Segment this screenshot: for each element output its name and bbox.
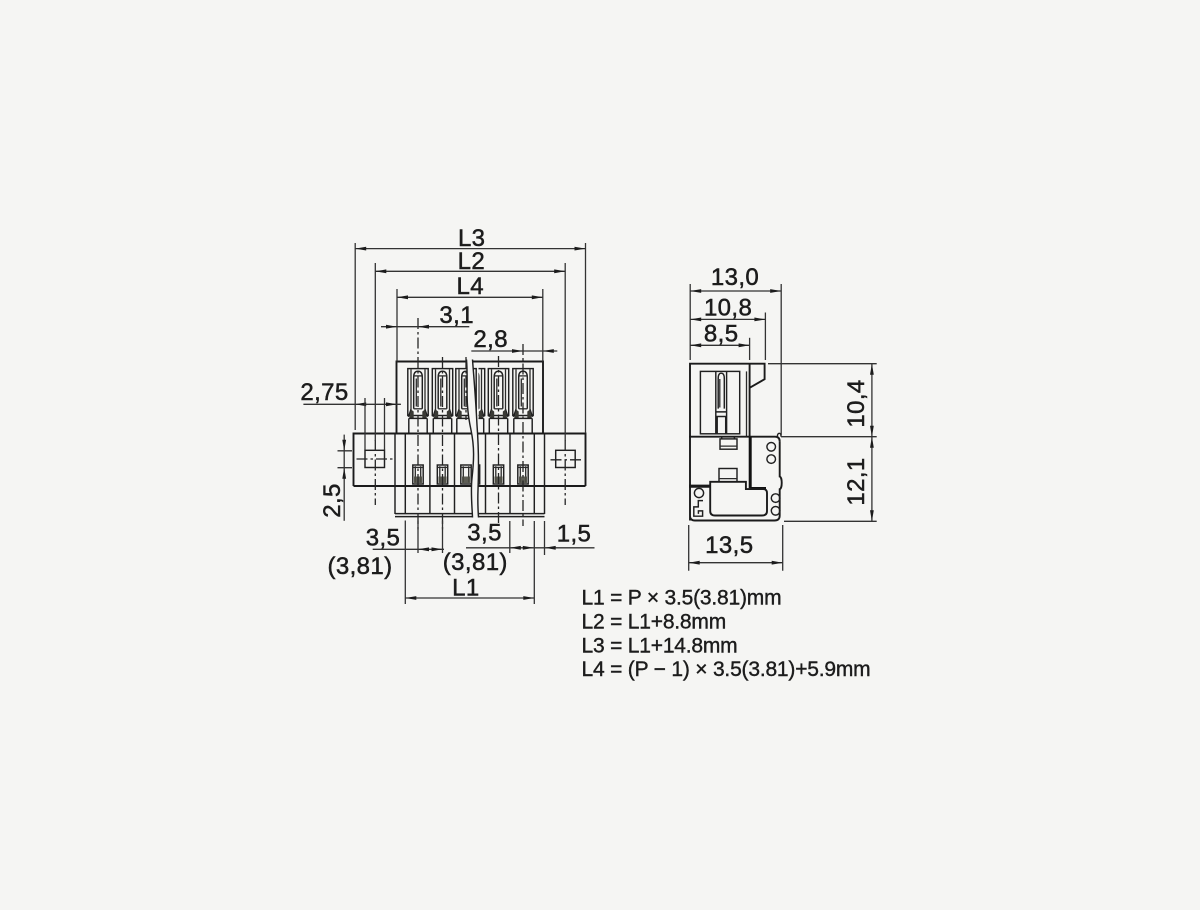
svg-text:3,5: 3,5: [366, 524, 401, 551]
svg-text:L2: L2: [458, 248, 486, 275]
svg-text:L1: L1: [452, 575, 480, 602]
svg-text:1,5: 1,5: [557, 521, 592, 548]
svg-text:(3,81): (3,81): [327, 553, 392, 580]
svg-text:3,1: 3,1: [439, 302, 474, 329]
svg-text:8,5: 8,5: [704, 321, 739, 348]
svg-text:10,4: 10,4: [843, 379, 870, 427]
svg-text:2,5: 2,5: [319, 483, 346, 518]
svg-text:L2 = L1+8.8mm: L2 = L1+8.8mm: [582, 611, 727, 634]
svg-text:13,5: 13,5: [705, 532, 753, 559]
svg-text:2,8: 2,8: [473, 326, 508, 353]
svg-text:13,0: 13,0: [711, 264, 759, 291]
svg-text:(3,81): (3,81): [443, 549, 508, 576]
svg-text:L4: L4: [457, 273, 485, 300]
svg-text:L3 = L1+14.8mm: L3 = L1+14.8mm: [582, 634, 738, 657]
svg-text:L4 = (P − 1) × 3.5(3.81)+5.9mm: L4 = (P − 1) × 3.5(3.81)+5.9mm: [582, 658, 871, 681]
svg-text:2,75: 2,75: [300, 379, 348, 406]
svg-text:L1 = P × 3.5(3.81)mm: L1 = P × 3.5(3.81)mm: [582, 587, 782, 610]
svg-text:10,8: 10,8: [704, 295, 752, 322]
svg-text:3,5: 3,5: [467, 520, 502, 547]
svg-text:12,1: 12,1: [843, 457, 870, 505]
